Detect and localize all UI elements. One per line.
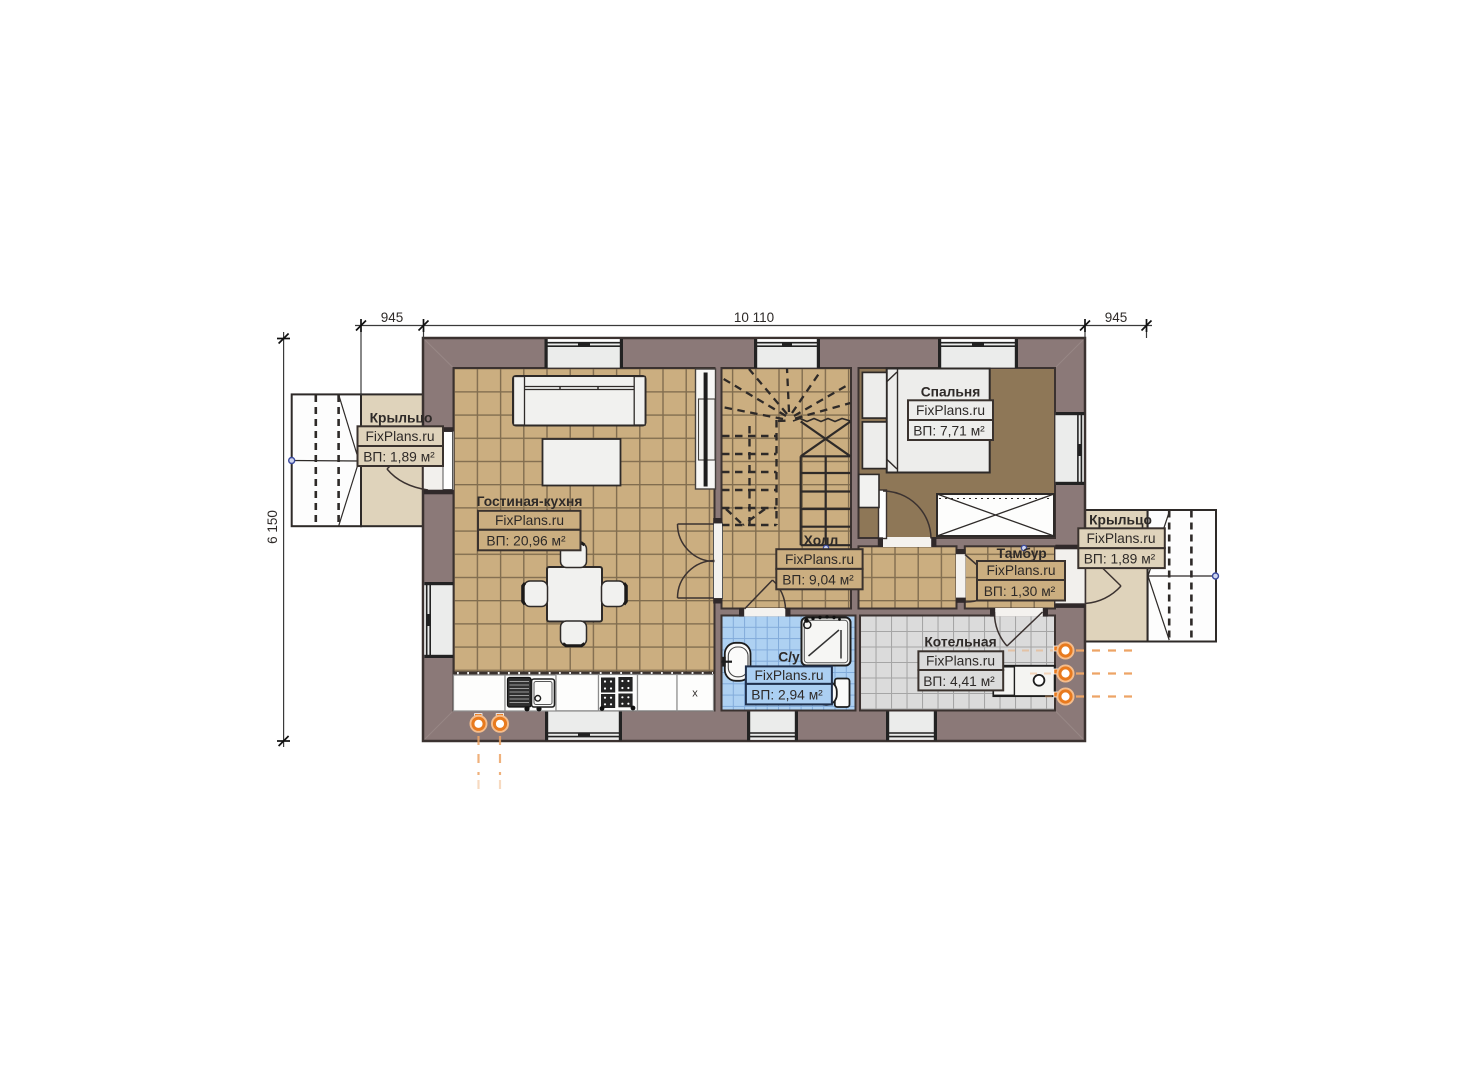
svg-text:FixPlans.ru: FixPlans.ru xyxy=(365,429,434,444)
svg-text:ВП: 2,94 м²: ВП: 2,94 м² xyxy=(751,688,823,703)
svg-text:ВП: 1,89 м²: ВП: 1,89 м² xyxy=(1084,551,1156,566)
svg-text:С/у: С/у xyxy=(778,650,800,665)
svg-text:10 110: 10 110 xyxy=(734,310,774,325)
svg-text:ВП: 7,71 м²: ВП: 7,71 м² xyxy=(913,423,985,438)
svg-text:Котельная: Котельная xyxy=(924,635,996,650)
svg-text:Гостиная-кухня: Гостиная-кухня xyxy=(477,494,583,509)
svg-text:Крыльцо: Крыльцо xyxy=(1089,513,1152,528)
svg-text:FixPlans.ru: FixPlans.ru xyxy=(754,668,823,683)
svg-text:Тамбур: Тамбур xyxy=(997,546,1047,561)
svg-text:6 150: 6 150 xyxy=(265,510,280,544)
svg-text:ВП: 4,41 м²: ВП: 4,41 м² xyxy=(923,674,995,689)
svg-text:FixPlans.ru: FixPlans.ru xyxy=(1086,531,1155,546)
svg-text:ВП: 9,04 м²: ВП: 9,04 м² xyxy=(782,573,854,588)
svg-text:ВП: 1,89 м²: ВП: 1,89 м² xyxy=(363,449,435,464)
svg-text:FixPlans.ru: FixPlans.ru xyxy=(986,563,1055,578)
svg-text:FixPlans.ru: FixPlans.ru xyxy=(785,552,854,567)
svg-text:Крыльцо: Крыльцо xyxy=(370,411,433,426)
svg-text:ВП: 20,96 м²: ВП: 20,96 м² xyxy=(486,534,566,549)
svg-text:ВП: 1,30 м²: ВП: 1,30 м² xyxy=(984,584,1056,599)
svg-text:945: 945 xyxy=(1105,310,1128,325)
svg-text:x: x xyxy=(692,688,698,700)
svg-text:FixPlans.ru: FixPlans.ru xyxy=(926,654,995,669)
svg-text:Спальня: Спальня xyxy=(921,385,981,400)
svg-text:945: 945 xyxy=(381,310,404,325)
svg-text:Холл: Холл xyxy=(804,533,839,548)
svg-text:FixPlans.ru: FixPlans.ru xyxy=(916,403,985,418)
svg-text:FixPlans.ru: FixPlans.ru xyxy=(495,513,564,528)
